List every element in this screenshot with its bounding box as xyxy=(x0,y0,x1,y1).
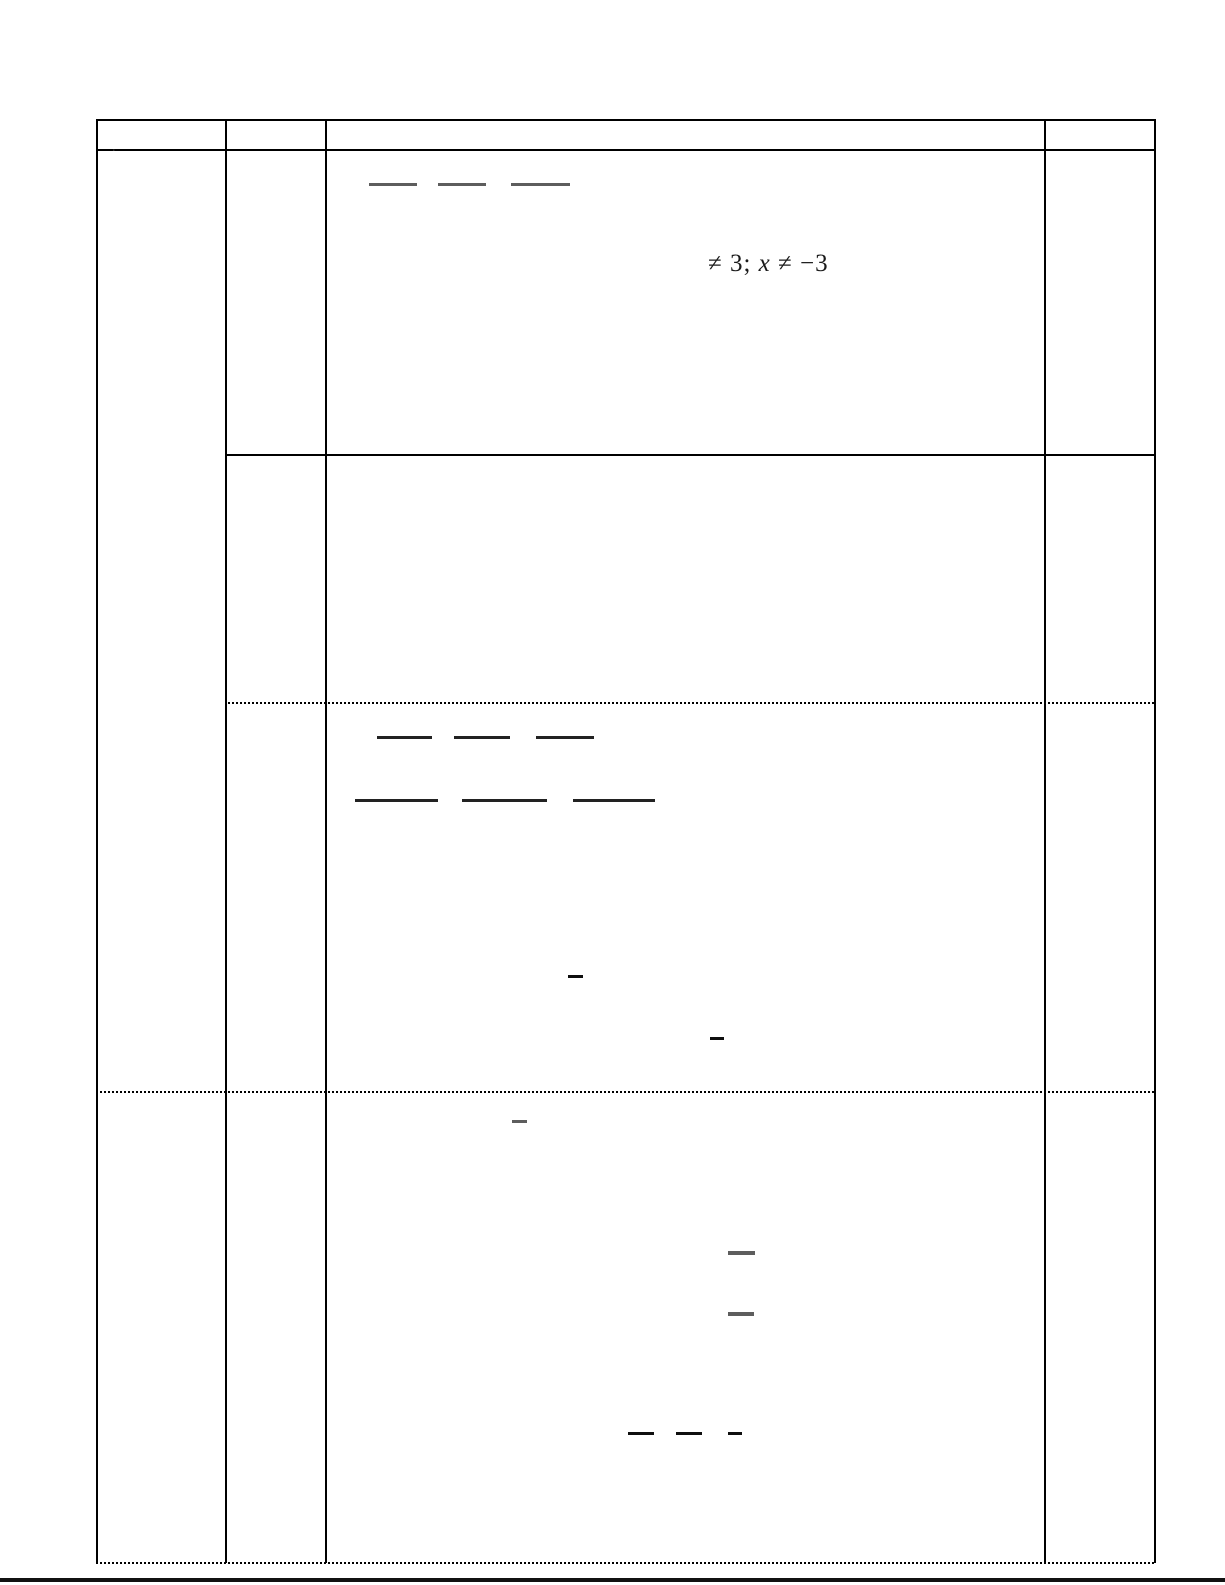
row-number-marker: . xyxy=(112,140,116,156)
fraction-bar xyxy=(728,1432,742,1435)
fraction-bar xyxy=(676,1432,702,1435)
table-border-top xyxy=(96,119,1156,121)
fraction-bar xyxy=(573,799,655,802)
table-divider-col1 xyxy=(225,120,227,1563)
table-divider-col2 xyxy=(325,120,327,1563)
document-page: . ≠ 3; x ≠ −3 xyxy=(0,0,1225,1585)
fraction-bar xyxy=(369,183,417,186)
fraction-bar xyxy=(536,736,594,739)
table-border-left xyxy=(96,120,98,1563)
fraction-bar xyxy=(628,1432,654,1435)
table-border-bottom-dotted xyxy=(96,1562,1154,1564)
fraction-bar xyxy=(568,975,583,978)
math-condition-prefix: ≠ 3; xyxy=(708,250,759,277)
page-bottom-rule xyxy=(0,1578,1225,1582)
math-variable: x xyxy=(759,250,771,277)
fraction-bar xyxy=(728,1312,754,1316)
table-border-right xyxy=(1154,120,1156,1563)
fraction-bar xyxy=(728,1251,755,1255)
fraction-bar xyxy=(462,799,547,802)
table-divider-col3 xyxy=(1044,120,1046,1563)
table-header-separator xyxy=(96,149,1156,151)
fraction-bar xyxy=(454,736,510,739)
math-condition-suffix: ≠ −3 xyxy=(771,250,829,277)
fraction-bar xyxy=(377,736,432,739)
fraction-bar xyxy=(512,1120,527,1123)
math-condition-text: ≠ 3; x ≠ −3 xyxy=(708,250,829,278)
fraction-bar xyxy=(355,799,438,802)
table-row-separator-3-dotted xyxy=(96,1091,1154,1093)
fraction-bar xyxy=(710,1037,724,1040)
fraction-bar xyxy=(438,183,486,186)
fraction-bar xyxy=(511,183,570,186)
table-row-separator-2-dotted xyxy=(225,702,1154,704)
table-row-separator-1 xyxy=(225,454,1154,456)
